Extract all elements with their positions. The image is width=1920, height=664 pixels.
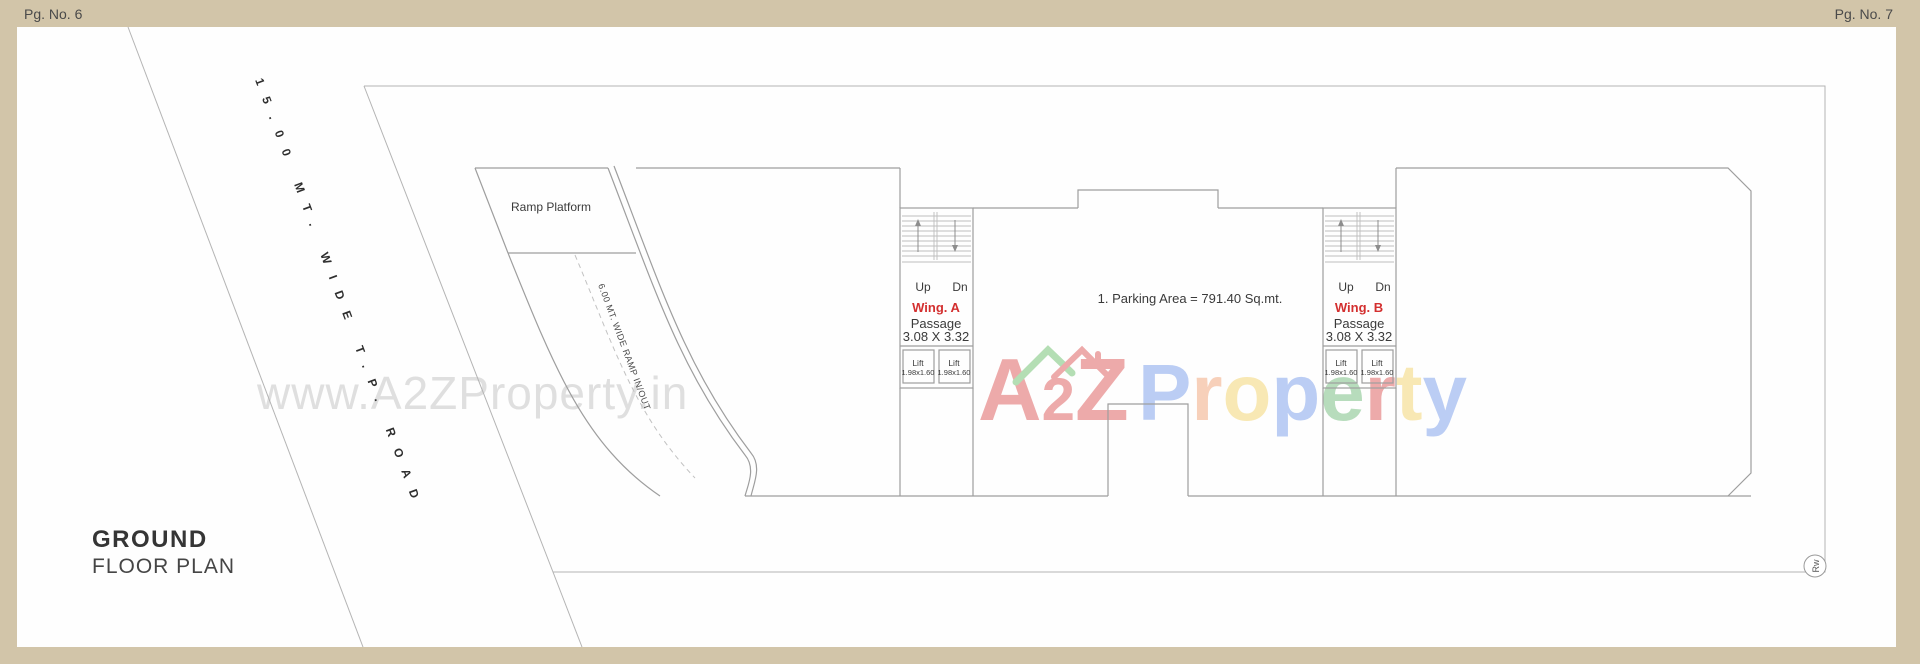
wing-a-passage-size: 3.08 X 3.32 bbox=[903, 329, 970, 344]
wing-a-lift-1-size: 1.98x1.60 bbox=[902, 368, 935, 377]
page-number-right: Pg. No. 7 bbox=[1835, 6, 1894, 22]
edge-marker-label: Rw bbox=[1811, 559, 1821, 572]
wing-a-up-label: Up bbox=[915, 280, 931, 294]
logo-letter-p1: P bbox=[1138, 348, 1191, 437]
plan-title-line2: FLOOR PLAN bbox=[92, 555, 235, 578]
wing-b-lift-2-size: 1.98x1.60 bbox=[1361, 368, 1394, 377]
watermark-url-text: www.A2ZProperty.in bbox=[256, 367, 688, 419]
wing-b-dn-label: Dn bbox=[1375, 280, 1390, 294]
wing-a-dn-label: Dn bbox=[952, 280, 967, 294]
wing-a-lift-2-size: 1.98x1.60 bbox=[938, 368, 971, 377]
wing-b-passage-size: 3.08 X 3.32 bbox=[1326, 329, 1393, 344]
logo-letter-a: A bbox=[978, 340, 1042, 439]
logo-letter-y: y bbox=[1423, 348, 1468, 437]
wing-a-lift-1-label: Lift bbox=[912, 358, 924, 368]
logo-letter-p2: p bbox=[1271, 348, 1320, 437]
plan-title-line1: GROUND bbox=[92, 526, 208, 553]
floor-plan-page: Pg. No. 6 Pg. No. 7 www.A2ZProperty.in A… bbox=[0, 0, 1920, 664]
wing-b-name: Wing. B bbox=[1335, 300, 1383, 315]
ramp-platform-label: Ramp Platform bbox=[511, 200, 591, 214]
wing-b-lift-1-label: Lift bbox=[1335, 358, 1347, 368]
page-number-left: Pg. No. 6 bbox=[24, 6, 83, 22]
wing-a-lift-2-label: Lift bbox=[948, 358, 960, 368]
wing-a-name: Wing. A bbox=[912, 300, 960, 315]
wing-b-lift-1-size: 1.98x1.60 bbox=[1325, 368, 1358, 377]
a2z-property-logo: A2Z Property bbox=[978, 340, 1468, 439]
logo-letter-r1: r bbox=[1191, 348, 1222, 437]
logo-letter-t: t bbox=[1396, 348, 1423, 437]
wing-b-lift-2-label: Lift bbox=[1371, 358, 1383, 368]
floor-plan-canvas: Pg. No. 6 Pg. No. 7 www.A2ZProperty.in A… bbox=[0, 0, 1920, 664]
wing-b-up-label: Up bbox=[1338, 280, 1354, 294]
parking-area-note: 1. Parking Area = 791.40 Sq.mt. bbox=[1098, 291, 1283, 306]
logo-letter-o: o bbox=[1223, 348, 1272, 437]
boundary-marker: Rw bbox=[1804, 555, 1826, 577]
